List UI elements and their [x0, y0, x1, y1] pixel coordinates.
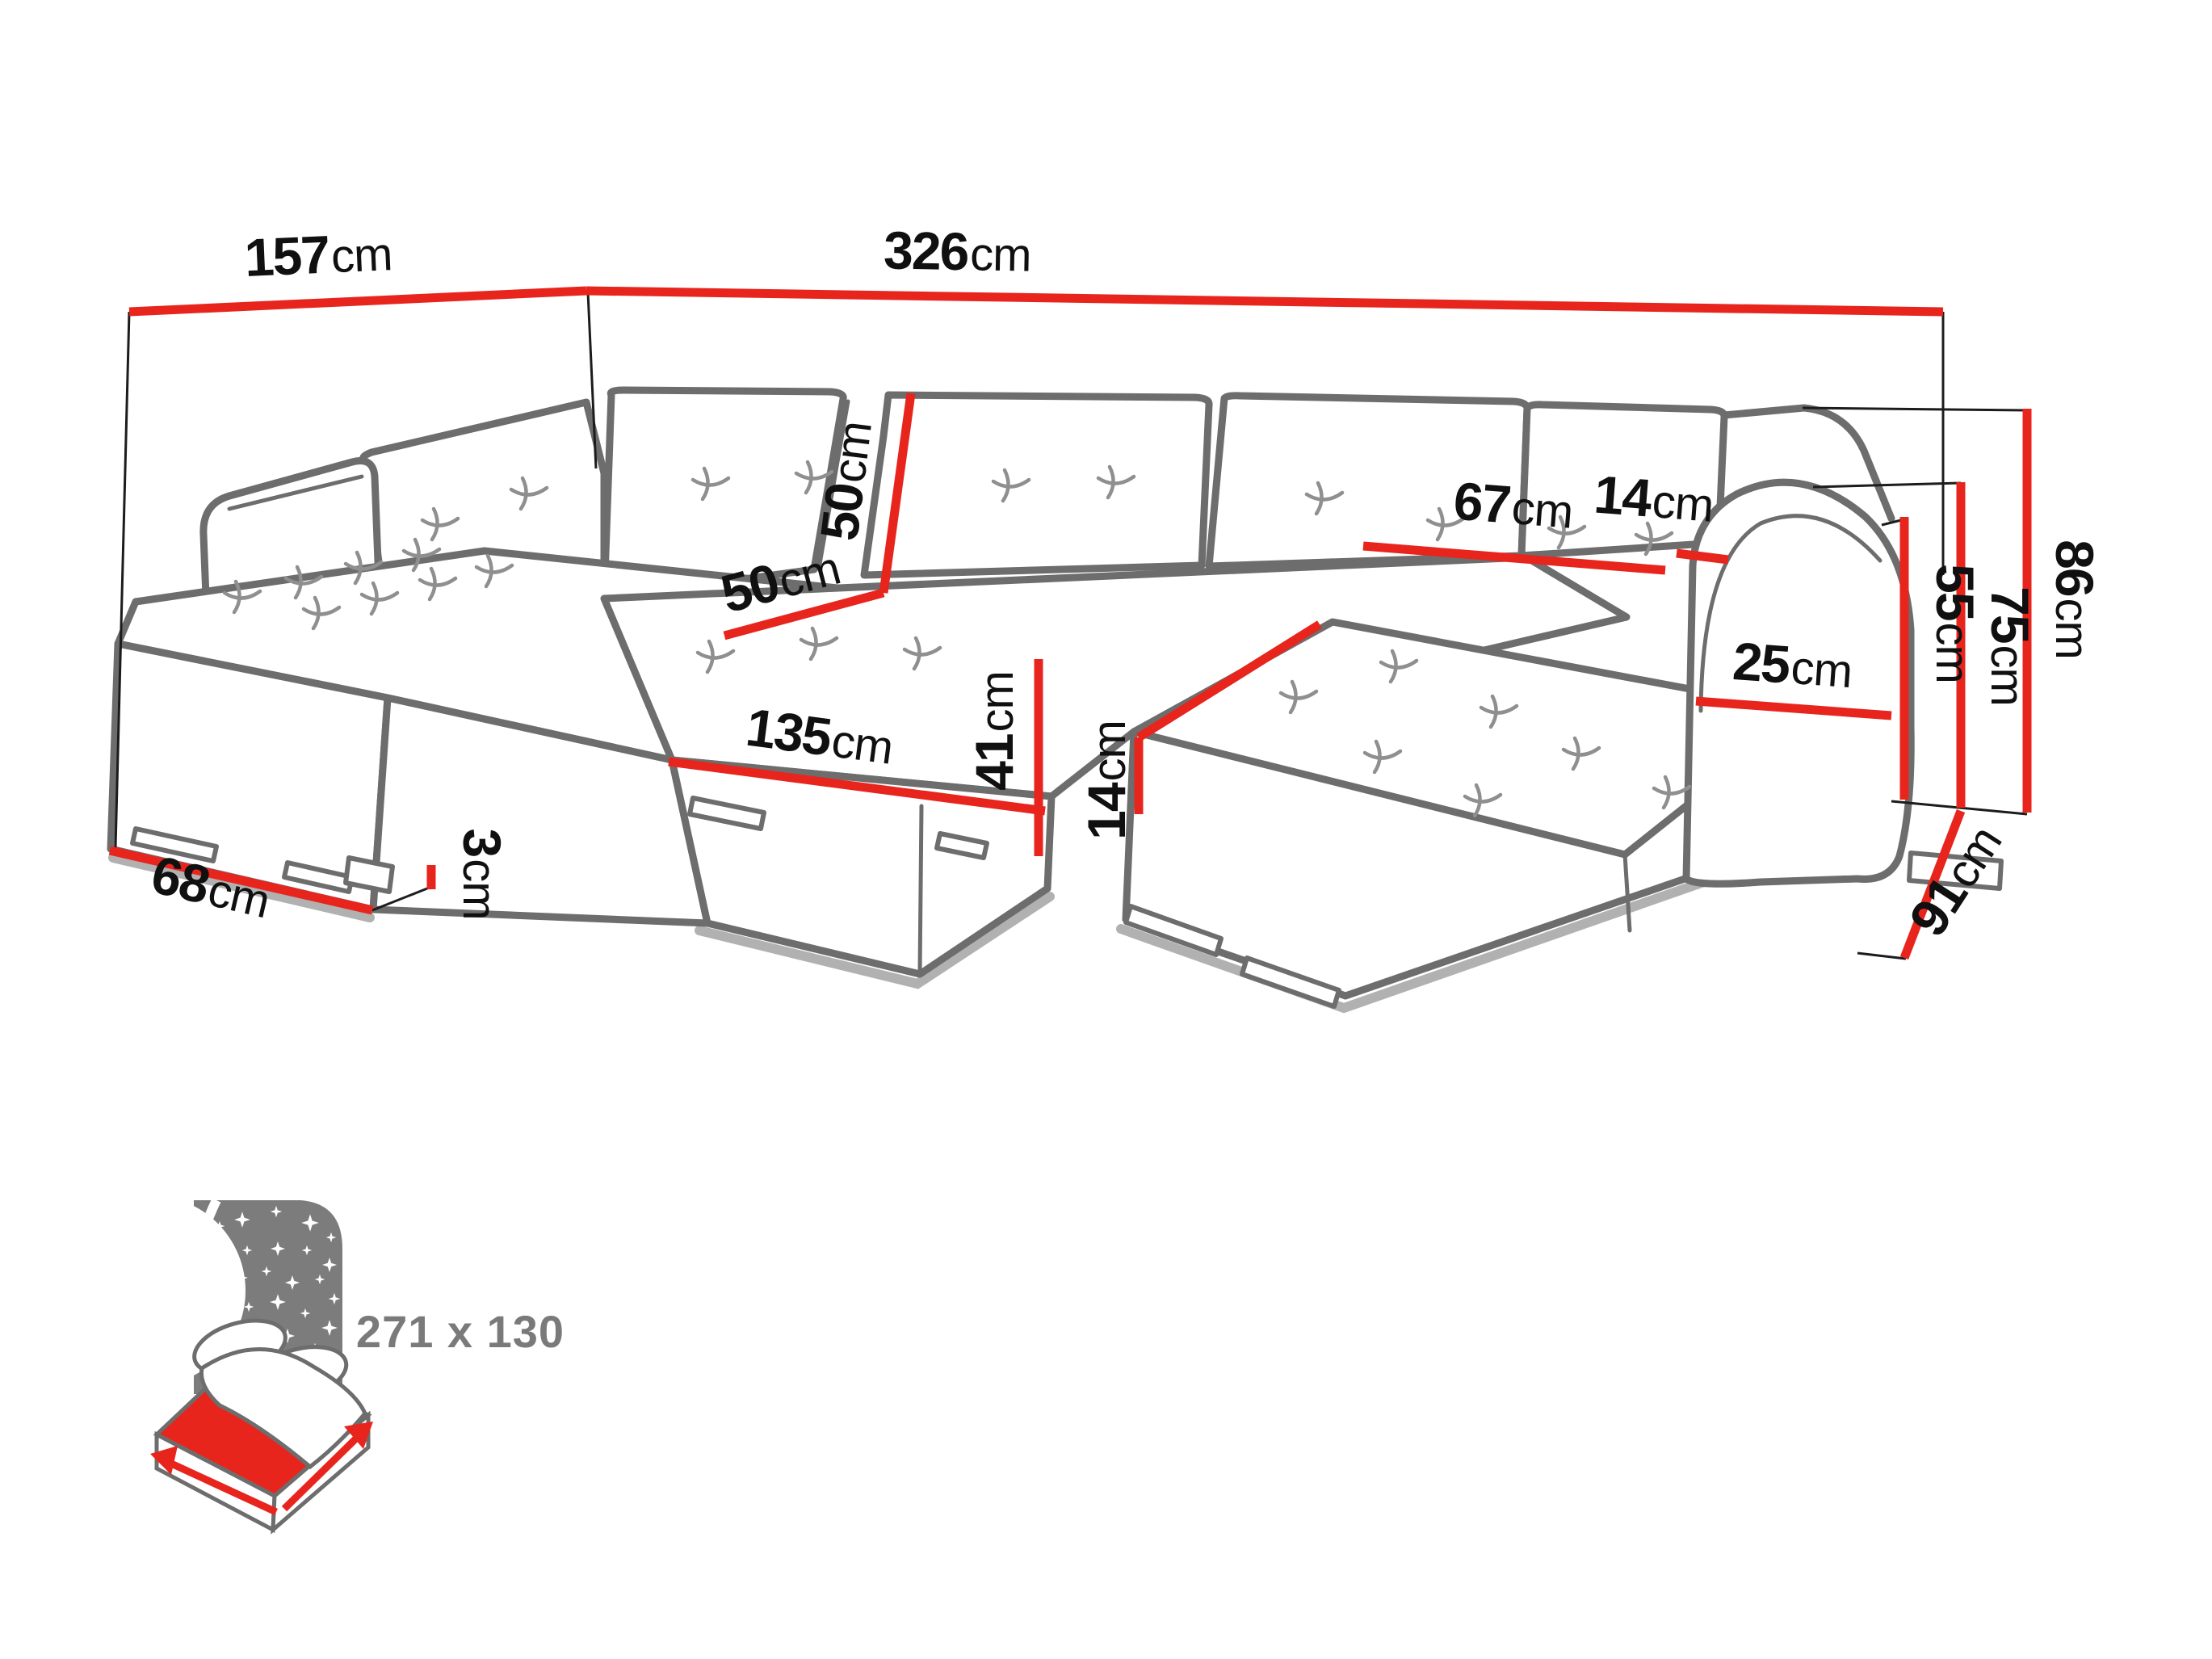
sofa-dimension-diagram: 157cm 326cm 67cm 14cm 25cm 50cm 50cm 135… — [0, 0, 2212, 1659]
dim-line-326 — [586, 291, 1943, 312]
backrest-cushion-2 — [864, 395, 1209, 575]
dim-label-3: 3cm — [452, 828, 512, 919]
dim-label-55: 55cm — [1925, 564, 1985, 683]
dim-label-326: 326cm — [884, 220, 1032, 282]
dim-label-86: 86cm — [2045, 540, 2105, 659]
sleeping-area-size-label: 271 x 130 — [356, 1306, 565, 1357]
dim-line-157 — [129, 291, 586, 312]
foot-leg-3cm — [346, 858, 392, 892]
guide-armrest-height-top — [1813, 483, 1961, 487]
center-front-crease — [920, 806, 921, 972]
dim-label-41: 41cm — [964, 671, 1024, 791]
guide-chaise-depth-bottom — [1857, 953, 1906, 959]
dim-label-14-cushion: 14cm — [1077, 720, 1136, 840]
guide-total-height-top — [1803, 408, 2027, 410]
diagram-canvas: 157cm 326cm 67cm 14cm 25cm 50cm 50cm 135… — [0, 0, 2212, 1659]
sleeping-area-icon: 271 x 130 — [55, 1195, 565, 1530]
dim-label-75: 75cm — [1980, 586, 2040, 706]
dim-label-157: 157cm — [243, 221, 393, 288]
